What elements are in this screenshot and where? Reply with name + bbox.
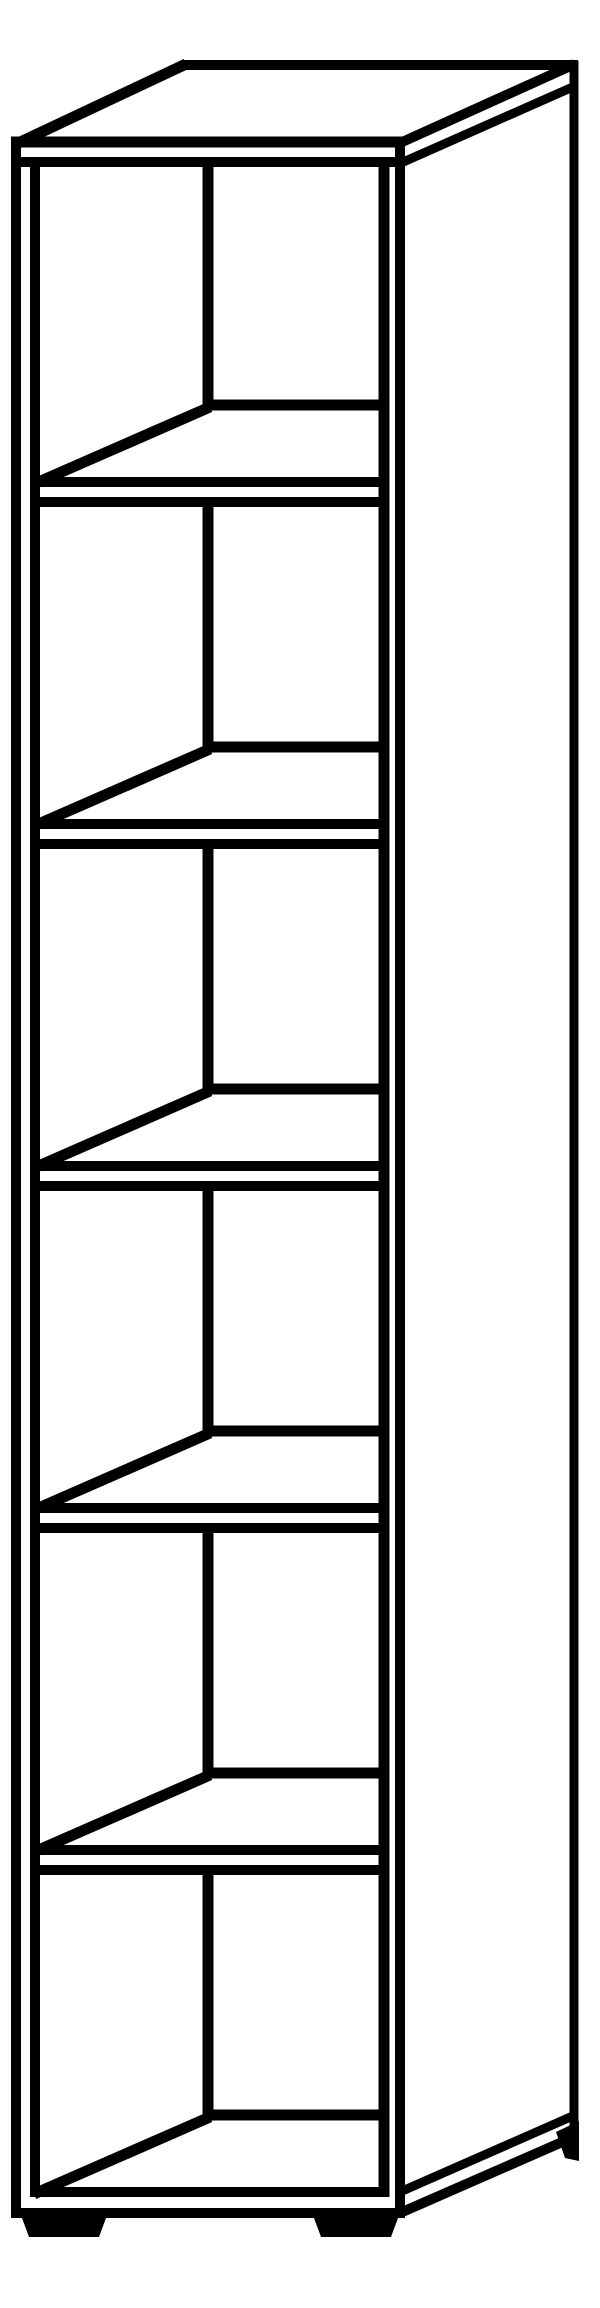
shelf-1-left-receding-edge bbox=[34, 407, 210, 484]
shelf-2-left-receding-edge bbox=[34, 749, 210, 826]
shelf-3-left-receding-edge bbox=[34, 1091, 210, 1168]
top-right-receding-edge bbox=[400, 64, 575, 143]
front-right-foot bbox=[314, 2218, 398, 2237]
side-bottom-lower-edge bbox=[400, 2136, 576, 2213]
shelf-4-left-receding-edge bbox=[34, 1433, 210, 1510]
top-left-receding-edge bbox=[14, 64, 186, 145]
front-left-foot bbox=[22, 2218, 106, 2237]
bottom-left-receding-edge bbox=[34, 2117, 210, 2194]
side-bottom-upper-edge bbox=[400, 2115, 575, 2192]
shelf-drawing-page bbox=[0, 0, 600, 2308]
top-slab-side-bottom-edge bbox=[401, 86, 575, 163]
back-right-foot bbox=[556, 2121, 579, 2161]
shelf-5-left-receding-edge bbox=[34, 1775, 210, 1852]
shelf-unit-illustration bbox=[0, 0, 600, 2308]
